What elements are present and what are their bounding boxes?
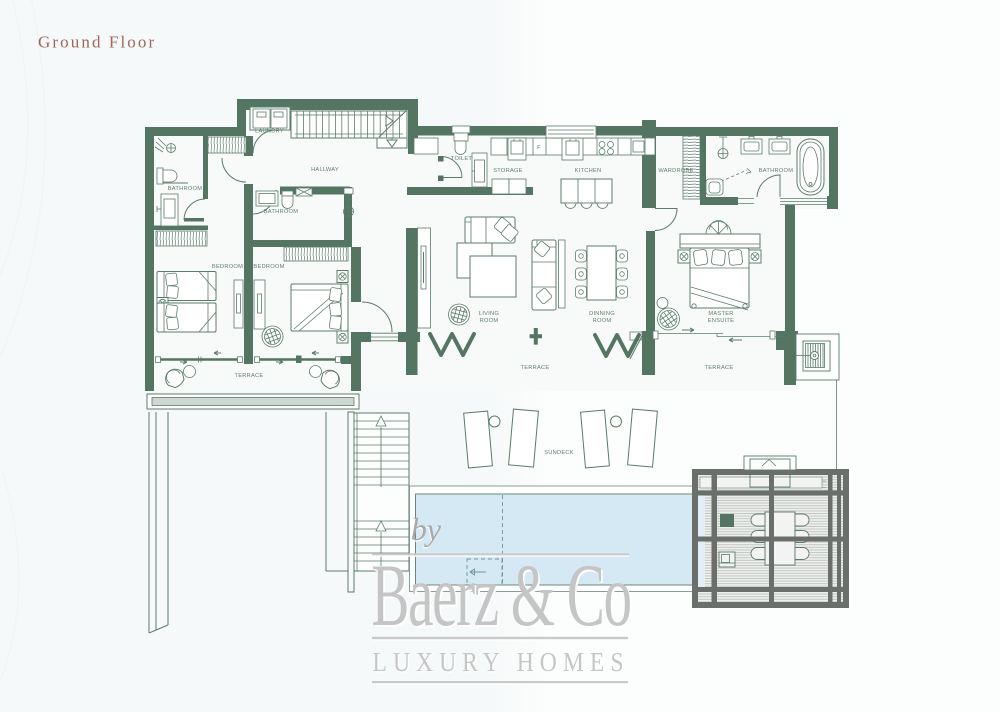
svg-text:F: F [537, 145, 541, 151]
svg-text:HALLWAY: HALLWAY [311, 167, 339, 173]
svg-text:MASTER: MASTER [708, 311, 733, 317]
svg-text:TERRACE: TERRACE [235, 373, 264, 379]
svg-text:by: by [411, 511, 442, 547]
svg-text:ENSUITE: ENSUITE [708, 318, 734, 324]
svg-text:DINNING: DINNING [589, 311, 615, 317]
svg-text:TERRACE: TERRACE [705, 365, 734, 371]
svg-text:KITCHEN: KITCHEN [575, 168, 602, 174]
svg-text:Baerz & Co: Baerz & Co [371, 546, 632, 645]
svg-text:STORAGE: STORAGE [493, 168, 522, 174]
svg-text:TERRACE: TERRACE [521, 365, 550, 371]
svg-text:Ground Floor: Ground Floor [38, 33, 156, 52]
svg-text:BEDROOM: BEDROOM [253, 264, 284, 270]
svg-text:WARDROBE: WARDROBE [658, 168, 693, 174]
svg-text:BATHROOM: BATHROOM [264, 209, 298, 215]
svg-text:BATHROOM: BATHROOM [168, 186, 202, 192]
svg-text:ROOM: ROOM [480, 318, 499, 324]
svg-text:ROOM: ROOM [593, 318, 612, 324]
svg-text:LAUNDRY: LAUNDRY [255, 129, 284, 135]
svg-text:LIVING: LIVING [479, 311, 499, 317]
svg-text:LUXURY HOMES: LUXURY HOMES [373, 646, 630, 677]
svg-text:BEDROOM: BEDROOM [212, 264, 243, 270]
svg-text:BATHROOM: BATHROOM [759, 168, 793, 174]
svg-text:TOILET: TOILET [451, 156, 473, 162]
svg-text:SUNDECK: SUNDECK [544, 450, 574, 456]
